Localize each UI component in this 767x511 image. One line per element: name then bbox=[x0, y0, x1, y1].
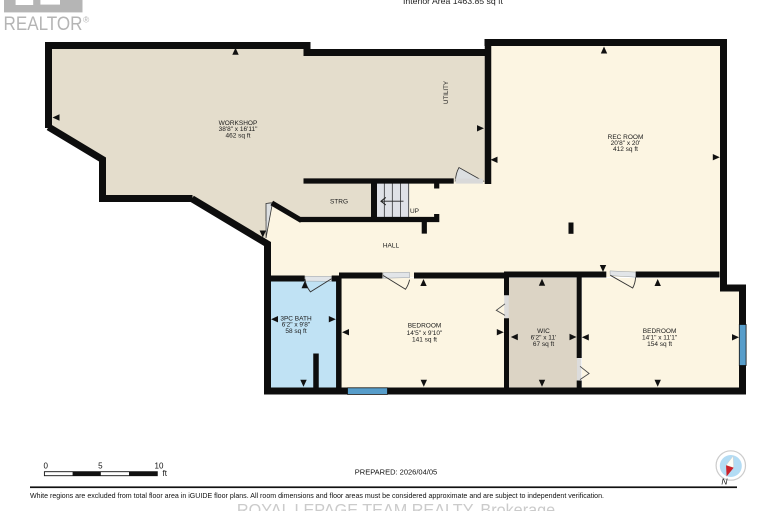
svg-text:REALTOR: REALTOR bbox=[4, 13, 83, 35]
svg-text:BEDROOM: BEDROOM bbox=[408, 323, 442, 330]
svg-text:Interior Area 1463.85 sq ft: Interior Area 1463.85 sq ft bbox=[403, 0, 504, 6]
svg-text:154 sq ft: 154 sq ft bbox=[647, 341, 672, 348]
svg-text:®: ® bbox=[83, 15, 90, 25]
svg-text:5: 5 bbox=[98, 461, 103, 470]
svg-text:67 sq ft: 67 sq ft bbox=[533, 341, 555, 348]
svg-text:0: 0 bbox=[43, 461, 48, 470]
svg-text:White regions are excluded fro: White regions are excluded from total fl… bbox=[30, 491, 604, 500]
svg-text:HALL: HALL bbox=[383, 243, 400, 250]
svg-text:PREPARED: 2026/04/05: PREPARED: 2026/04/05 bbox=[355, 468, 437, 477]
svg-text:STRG: STRG bbox=[330, 199, 348, 206]
svg-text:58 sq ft: 58 sq ft bbox=[285, 328, 307, 335]
svg-text:412 sq ft: 412 sq ft bbox=[613, 146, 638, 153]
svg-text:ROYAL LEPAGE TEAM REALTY, Brok: ROYAL LEPAGE TEAM REALTY, Brokerage bbox=[237, 502, 555, 511]
svg-text:141 sq ft: 141 sq ft bbox=[412, 337, 437, 344]
svg-text:ft: ft bbox=[163, 469, 168, 478]
svg-text:UP: UP bbox=[410, 208, 419, 215]
svg-text:462 sq ft: 462 sq ft bbox=[226, 133, 251, 140]
svg-text:N: N bbox=[721, 477, 728, 487]
svg-text:UTILITY: UTILITY bbox=[443, 81, 450, 104]
